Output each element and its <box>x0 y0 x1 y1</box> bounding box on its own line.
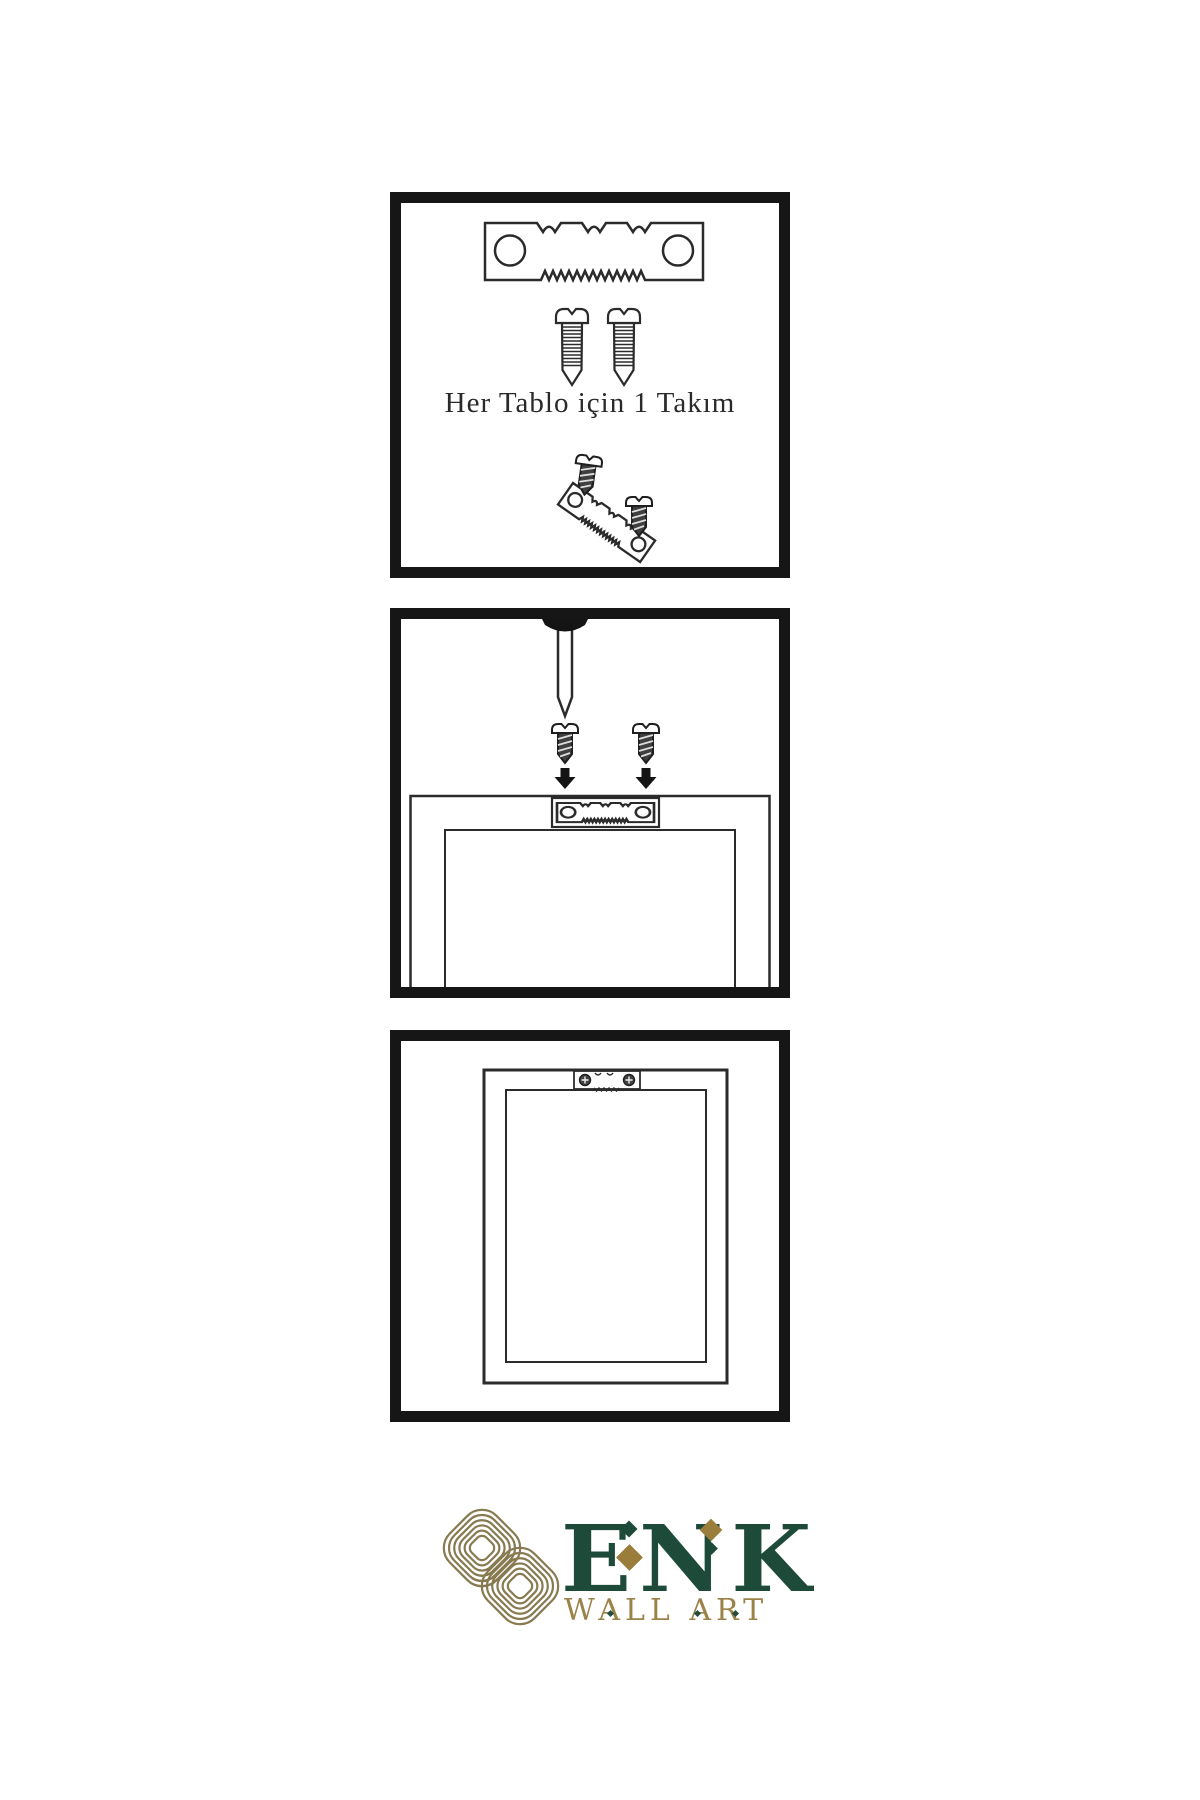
step1-illustration <box>401 203 779 567</box>
hung-frame-icon <box>484 1070 727 1383</box>
screw-icon <box>556 309 588 385</box>
screw-down-icon <box>633 724 659 763</box>
screw-down-icon <box>552 724 578 763</box>
wall-nail-icon <box>542 619 588 716</box>
sawtooth-hanger-icon <box>485 223 703 280</box>
sawtooth-hanger-small-icon <box>552 798 659 827</box>
mounted-hanger-icon <box>574 1071 640 1091</box>
brand-name: ENK <box>561 1513 819 1605</box>
kit-caption: Her Tablo için 1 Takım <box>401 386 779 420</box>
knot-logo-icon <box>436 1502 568 1634</box>
angled-hanger-assembly-icon <box>558 454 655 562</box>
step3-illustration <box>401 1041 779 1411</box>
frame-back-icon <box>411 796 770 987</box>
step2-illustration <box>401 619 779 987</box>
instruction-sheet: Her Tablo için 1 Takım <box>0 0 1200 1800</box>
step1-panel: Her Tablo için 1 Takım <box>390 192 790 578</box>
step2-panel <box>390 608 790 998</box>
screw-icon <box>608 309 640 385</box>
step3-panel <box>390 1030 790 1422</box>
down-arrow-icon <box>636 768 657 789</box>
down-arrow-icon <box>555 768 576 789</box>
